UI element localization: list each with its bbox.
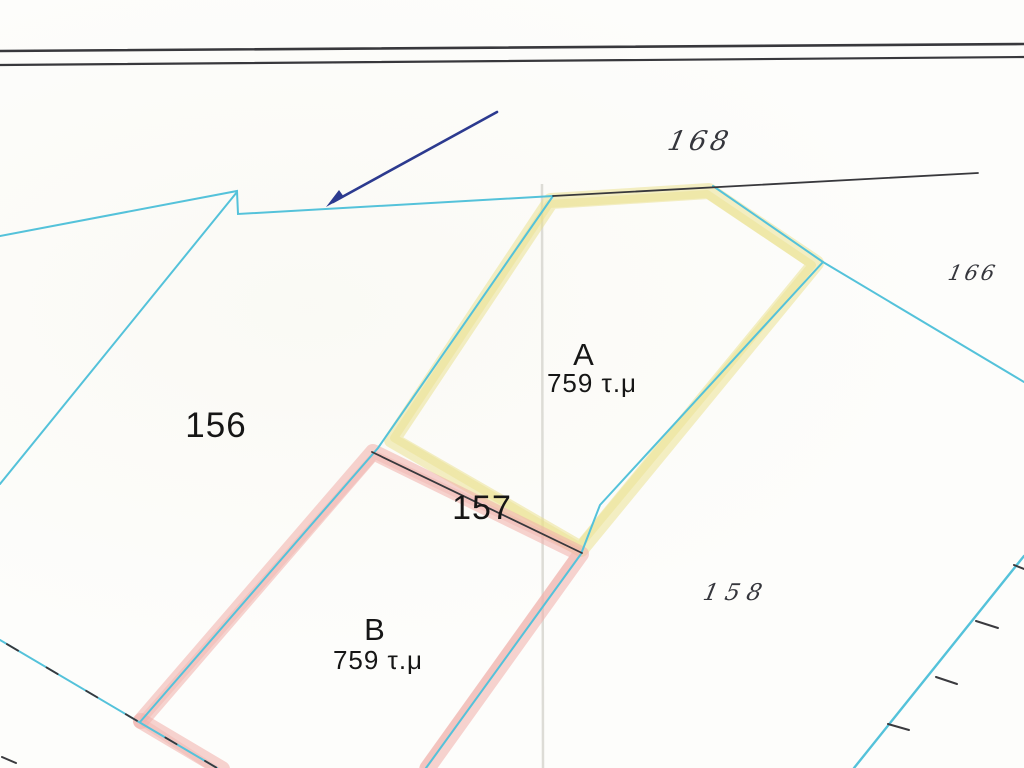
navy-annotation-line bbox=[326, 112, 497, 207]
tick-mark bbox=[888, 724, 909, 730]
parcel-label-166: 166 bbox=[935, 261, 1010, 285]
plot-b-name: B bbox=[351, 612, 399, 648]
tick-mark bbox=[936, 677, 957, 684]
cadastral-map-page: 168 166 156 157 158 A 759 τ.μ B 759 τ.μ bbox=[0, 0, 1024, 768]
survey-map-drawing bbox=[0, 0, 1024, 768]
top-border-line-lower bbox=[0, 57, 1024, 65]
road-edge-southeast bbox=[854, 556, 1024, 768]
sheet-border-lines bbox=[0, 44, 1024, 65]
parcel-label-168: 168 bbox=[655, 126, 746, 157]
parcel-label-156: 156 bbox=[178, 406, 254, 446]
parcel-label-157: 157 bbox=[444, 489, 520, 528]
tick-mark bbox=[976, 621, 998, 628]
road-168-boundary-line bbox=[553, 173, 978, 196]
plot-b-area: 759 τ.μ bbox=[322, 645, 434, 676]
tick-mark bbox=[2, 757, 16, 763]
boundary-northeast-of-plot-a bbox=[713, 186, 823, 262]
boundary-north-of-156 bbox=[0, 191, 553, 236]
plot-a-area: 759 τ.μ bbox=[536, 368, 648, 399]
top-border-line-upper bbox=[0, 44, 1024, 51]
paper-crease-line bbox=[542, 184, 543, 768]
parcel-label-158: 158 bbox=[691, 580, 781, 606]
